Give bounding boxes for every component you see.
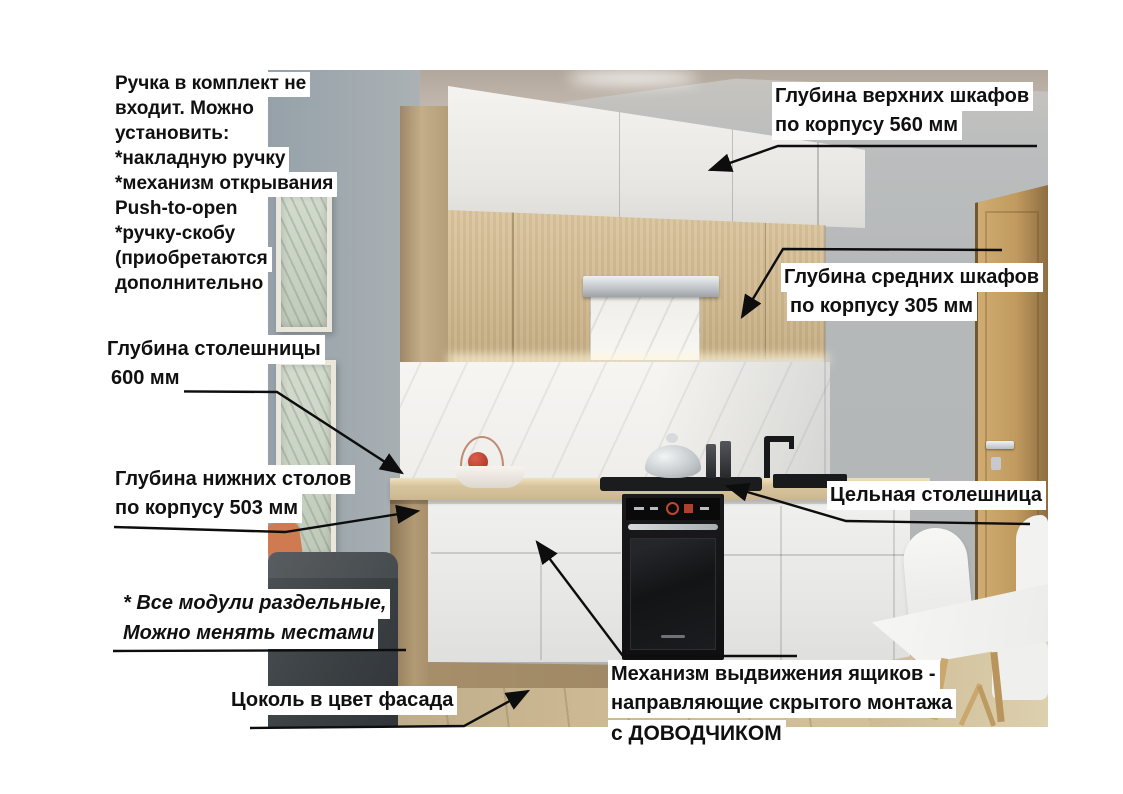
spice-grinder (720, 441, 731, 478)
drawer-seam-left (431, 552, 621, 554)
oven-door-glass (630, 538, 716, 650)
callout-line: Глубина верхних шкафов (772, 82, 1033, 111)
oven-display-segment (634, 507, 644, 510)
callout-line: Push-to-open (112, 197, 241, 222)
callout-line: входит. Можно (112, 97, 258, 122)
hood-recess-backsplash (590, 296, 700, 360)
spice-grinder (706, 444, 716, 478)
callout-line: направляющие скрытого монтажа (608, 689, 956, 718)
callout-upper-cabinet-depth: Глубина верхних шкафов по корпусу 560 мм (772, 82, 1033, 140)
callout-plinth: Цоколь в цвет фасада (228, 686, 457, 715)
callout-base-cabinet-depth: Глубина нижних столов по корпусу 503 мм (112, 465, 355, 523)
callout-line: с ДОВОДЧИКОМ (608, 720, 786, 749)
cabinet-door-seam (765, 210, 767, 363)
faucet-spout (789, 436, 794, 449)
ceiling-light-glare (568, 70, 698, 86)
callout-modules-note: * Все модули раздельные, Можно менять ме… (120, 589, 390, 649)
door-lock (991, 457, 1001, 470)
callout-line: 600 мм (108, 364, 184, 393)
callout-handle-note: Ручка в комплект не входит. Можно устано… (112, 72, 337, 297)
callout-line: * Все модули раздельные, (120, 589, 390, 619)
built-in-oven (622, 494, 724, 660)
oven-display-segment (650, 507, 658, 510)
oven-display-indicator (684, 504, 693, 513)
callout-line: (приобретаются (112, 247, 272, 272)
callout-line: Глубина средних шкафов (781, 263, 1043, 292)
oven-handle (628, 524, 718, 530)
callout-line: Глубина нижних столов (112, 465, 355, 494)
callout-line: по корпусу 560 мм (772, 111, 962, 140)
callout-drawer-mechanism: Механизм выдвижения ящиков - направляющи… (608, 660, 956, 749)
fruit-bowl (455, 466, 525, 488)
cooker-hood (583, 276, 719, 297)
callout-line: Механизм выдвижения ящиков - (608, 660, 940, 689)
callout-line: установить: (112, 122, 233, 147)
oven-control-panel (626, 498, 720, 520)
sofa-armrest (268, 552, 398, 578)
middle-cabinet-side-panel (400, 106, 448, 363)
door-handle (986, 441, 1014, 449)
callout-line: Ручка в комплект не (112, 72, 310, 97)
kettle-lid-knob (666, 433, 678, 443)
callout-line: по корпусу 305 мм (787, 292, 977, 321)
callout-countertop-depth: Глубина столешницы 600 мм (104, 335, 325, 393)
callout-line: *ручку-скобу (112, 222, 239, 247)
annotated-kitchen-figure: { "annotations": { "handle_note": { "lin… (0, 0, 1123, 794)
callout-line: *механизм открывания (112, 172, 337, 197)
oven-logo (661, 635, 685, 638)
callout-line: *накладную ручку (112, 147, 289, 172)
cabinet-door-seam (540, 558, 542, 660)
faucet (764, 440, 770, 478)
callout-line: дополнительно (112, 272, 267, 297)
callout-line: Цоколь в цвет фасада (228, 686, 457, 715)
cabinet-door-seam (780, 506, 782, 660)
cooktop (600, 477, 762, 491)
oven-display-segment (700, 507, 709, 510)
callout-middle-cabinet-depth: Глубина средних шкафов по корпусу 305 мм (781, 263, 1043, 321)
cabinet-door-seam (512, 210, 514, 363)
callout-solid-countertop: Цельная столешница (827, 481, 1046, 510)
callout-line: по корпусу 503 мм (112, 494, 302, 523)
oven-dial (666, 502, 679, 515)
drawer-seam-right (724, 554, 904, 556)
callout-line: Можно менять местами (120, 619, 378, 649)
callout-line: Глубина столешницы (104, 335, 325, 364)
callout-line: Цельная столешница (827, 481, 1046, 510)
